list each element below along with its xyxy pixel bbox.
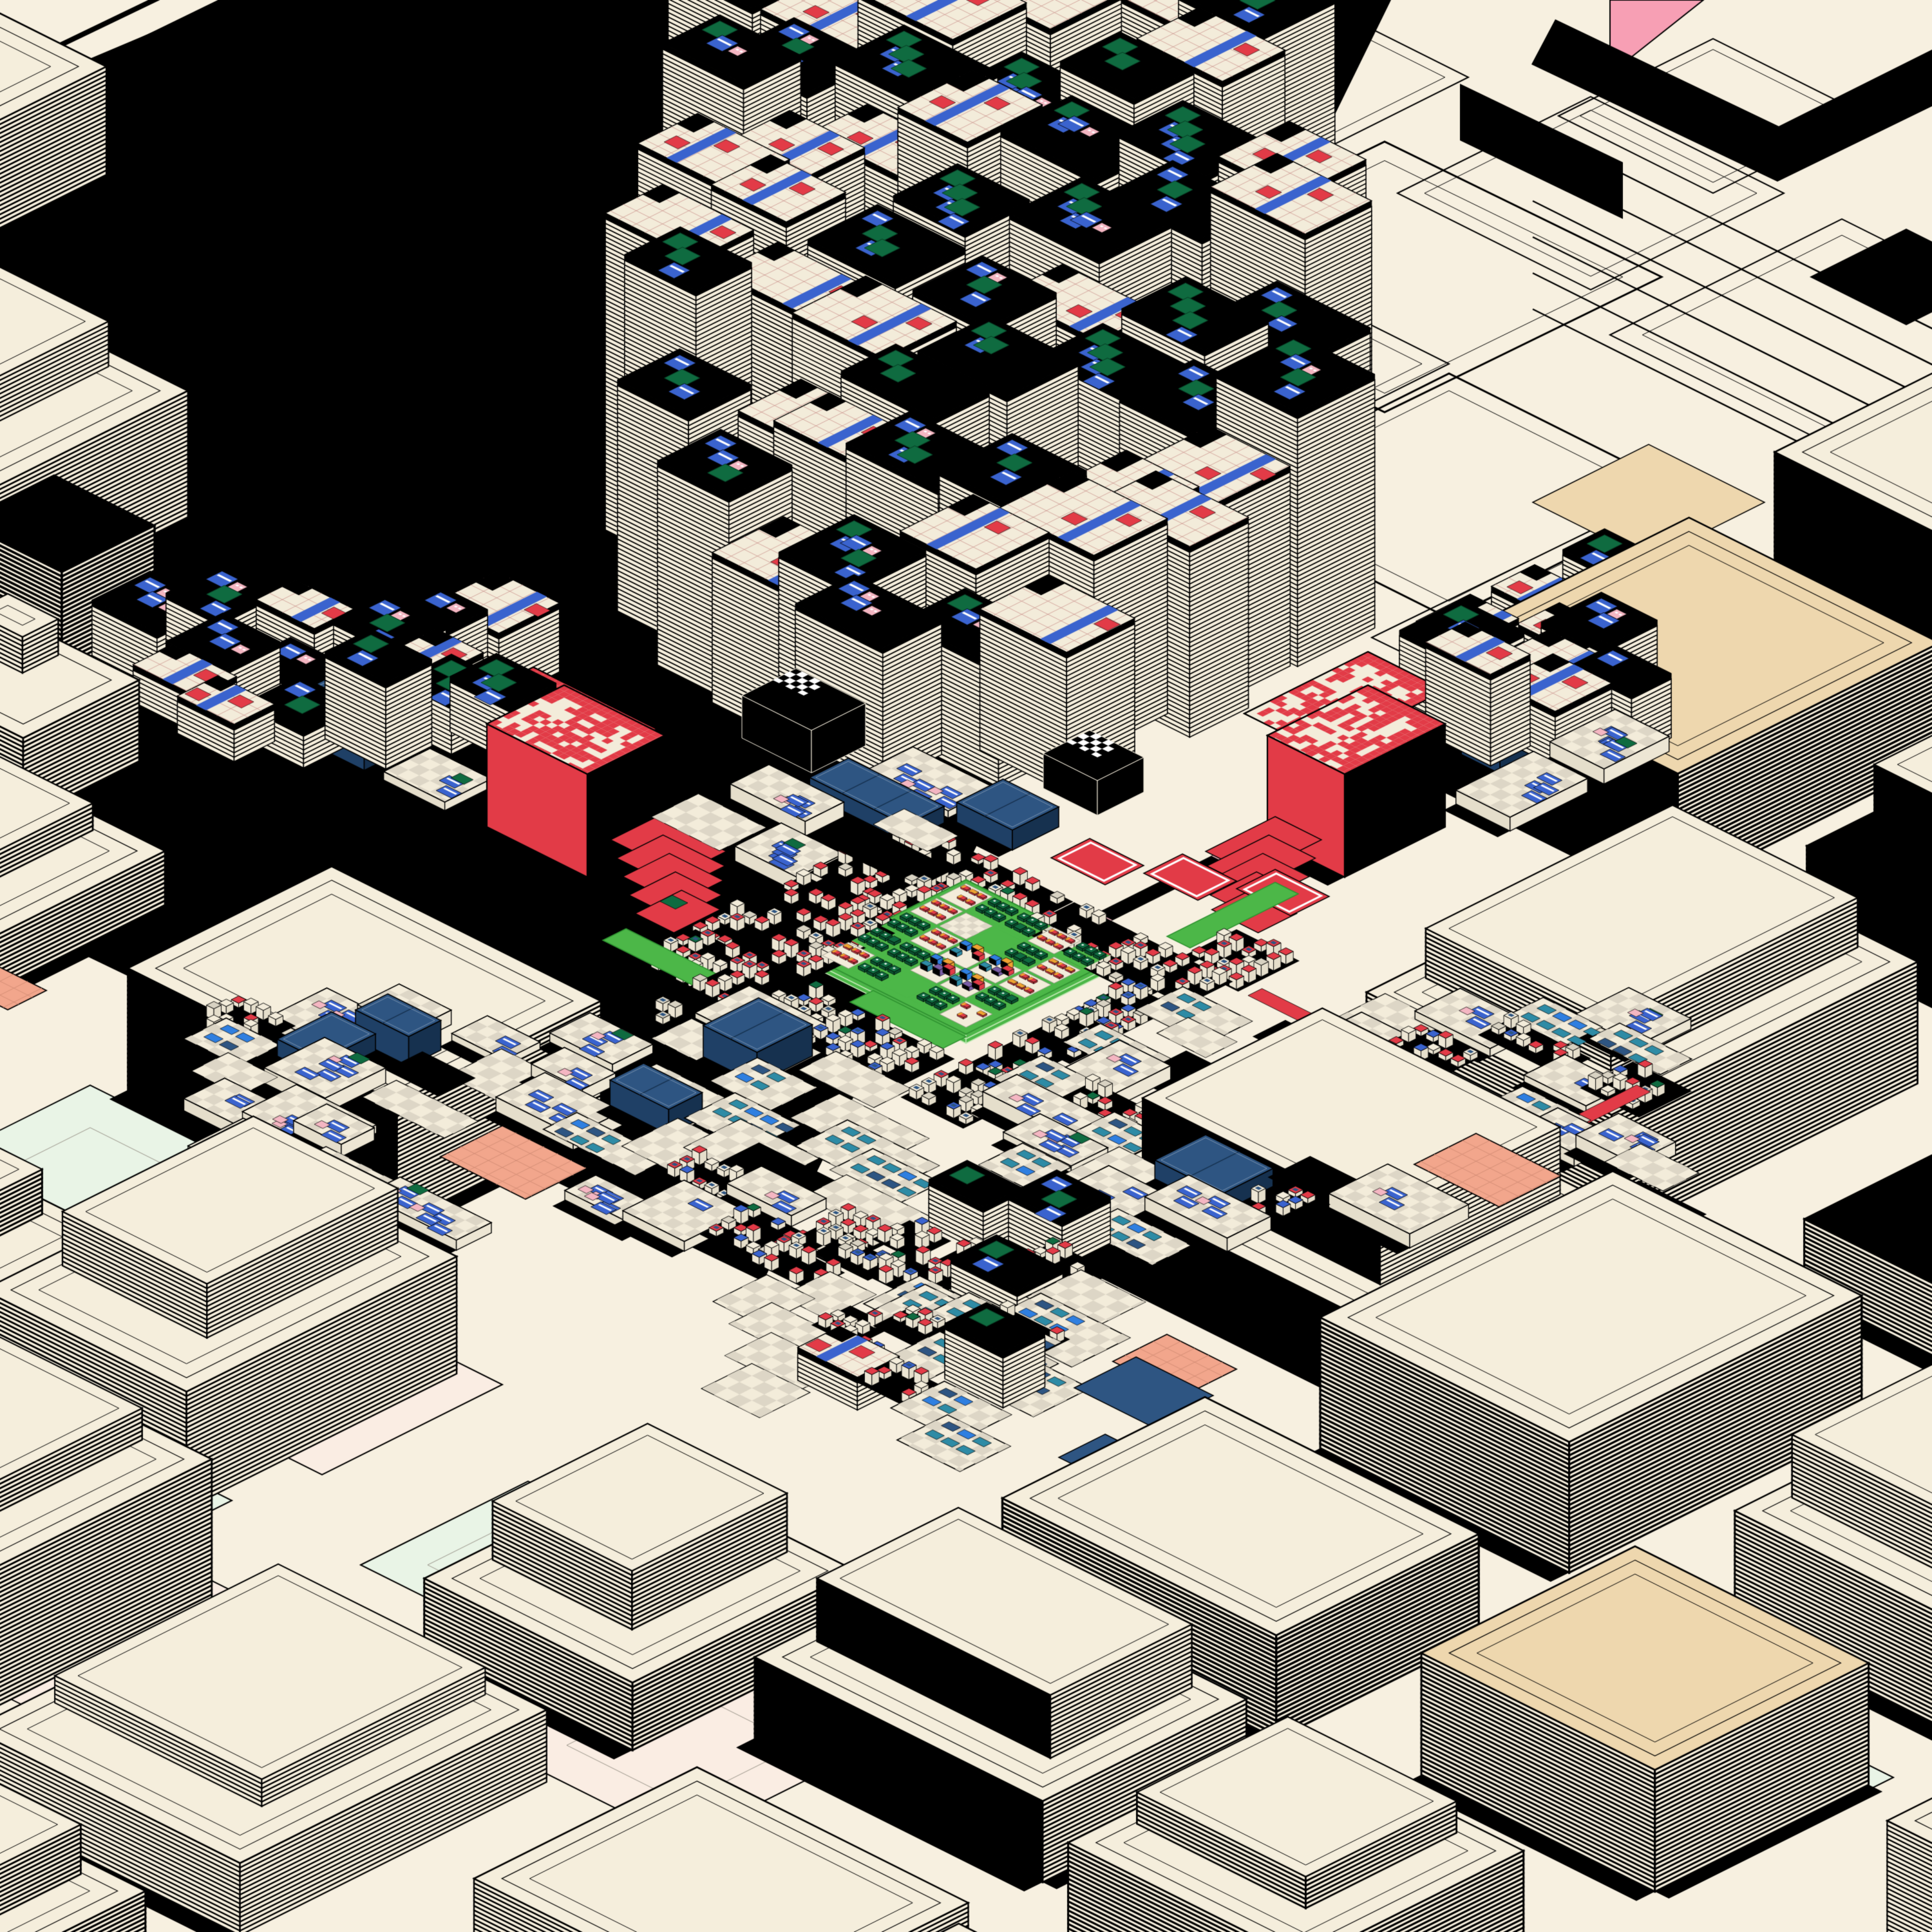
artwork-canvas: [0, 0, 1932, 1932]
generative-iso-city: [0, 0, 1932, 1932]
